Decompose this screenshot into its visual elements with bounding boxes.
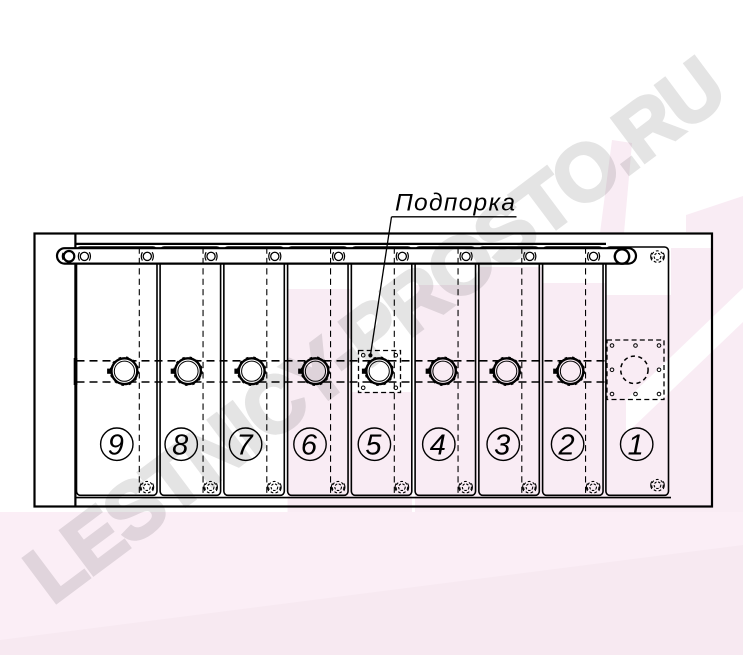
- svg-text:9: 9: [108, 429, 124, 461]
